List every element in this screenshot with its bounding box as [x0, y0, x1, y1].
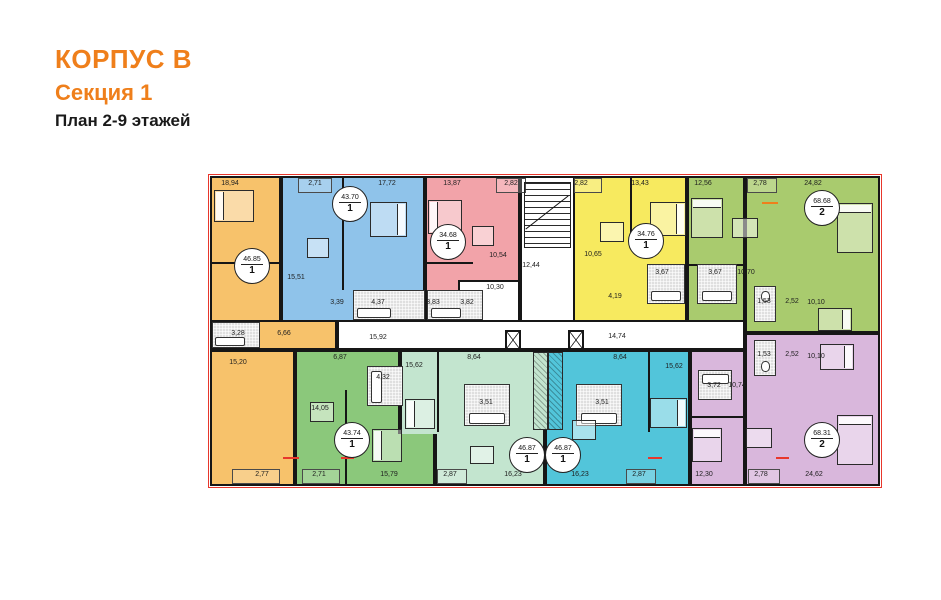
toilet-icon	[761, 361, 770, 372]
room-area-label: 10,10	[807, 299, 825, 307]
room-area-label: 2,82	[574, 180, 588, 188]
room-area-label: 12,56	[694, 180, 712, 188]
dining-table-icon	[746, 428, 772, 448]
room-area-label: 15,20	[229, 359, 247, 367]
room-area-label: 3,82	[460, 299, 474, 307]
door-marker	[648, 457, 662, 459]
room-area-label: 3,72	[707, 382, 721, 390]
apartment-badge: 68.68 2	[804, 190, 840, 226]
bed-icon	[370, 202, 407, 237]
dining-table-icon	[470, 446, 494, 464]
room-area-label: 6,66	[277, 330, 291, 338]
room-area-label: 15,62	[665, 363, 683, 371]
badge-room-count: 1	[643, 240, 649, 252]
room-area-label: 4,37	[371, 299, 385, 307]
room-area-label: 8,64	[613, 354, 627, 362]
section-title: Секция 1	[55, 80, 192, 106]
apartment-badge: 46.87 1	[545, 437, 581, 473]
bed-icon	[372, 429, 402, 462]
drawing-header: КОРПУС В Секция 1 План 2-9 этажей	[55, 44, 192, 131]
room-area-label: 3,28	[231, 330, 245, 338]
room-area-label: 1,53	[757, 298, 771, 306]
room-area-label: 4,19	[608, 293, 622, 301]
apartment-badge: 43.74 1	[334, 422, 370, 458]
room-area-label: 2,52	[785, 351, 799, 359]
badge-room-count: 1	[349, 439, 355, 451]
badge-area: 46.87	[516, 444, 538, 454]
door-marker	[762, 202, 778, 204]
badge-area: 43.74	[341, 429, 363, 439]
entry-hall-area-label: 10,30	[486, 284, 504, 292]
floor-plan: 18,94 3,28 6,66 15,20 2,77 2,71 17,72 15…	[210, 176, 880, 486]
room-area-label: 6,87	[333, 354, 347, 362]
room-area-label: 10,65	[584, 251, 602, 259]
bed-icon	[837, 203, 873, 253]
bed-icon	[405, 399, 435, 429]
badge-area: 46.85	[241, 255, 263, 265]
badge-area: 46.87	[552, 444, 574, 454]
room-area-label: 2,71	[308, 180, 322, 188]
room-area-label: 3,51	[479, 399, 493, 407]
badge-room-count: 2	[819, 207, 825, 219]
apartment-badge: 46.87 1	[509, 437, 545, 473]
apartment-badge: 46.85 1	[234, 248, 270, 284]
page: КОРПУС В Секция 1 План 2-9 этажей	[0, 0, 941, 600]
room-area-label: 1,53	[757, 351, 771, 359]
stairs-icon	[524, 182, 571, 248]
room-area-label: 15,62	[405, 362, 423, 370]
room-area-label: 24,82	[804, 180, 822, 188]
bathtub-icon	[431, 308, 461, 318]
room-area-label: 13,87	[443, 180, 461, 188]
badge-area: 34.76	[635, 230, 657, 240]
room-area-label: 13,43	[631, 180, 649, 188]
bathtub-icon	[651, 291, 681, 301]
bed-icon	[837, 415, 873, 465]
dining-table-icon	[600, 222, 624, 242]
apartment-badge: 34.68 1	[430, 224, 466, 260]
interior-wall	[437, 352, 439, 432]
room-area-label: 2,52	[785, 298, 799, 306]
room-area-label: 14,05	[311, 405, 329, 413]
bathroom	[353, 290, 425, 320]
badge-room-count: 1	[524, 454, 530, 466]
room-area-label: 18,94	[221, 180, 239, 188]
apartment-badge: 43.70 1	[332, 186, 368, 222]
badge-area: 68.68	[811, 197, 833, 207]
plan-caption: План 2-9 этажей	[55, 111, 192, 131]
room-area-label: 17,72	[378, 180, 396, 188]
room-area-label: 10,70	[737, 269, 755, 277]
bed-icon	[692, 428, 722, 462]
room-area-label: 15,79	[380, 471, 398, 479]
room-area-label: 10,10	[807, 353, 825, 361]
dining-table-icon	[472, 226, 494, 246]
bed-icon	[650, 398, 687, 428]
door-marker	[283, 457, 299, 459]
bathtub-icon	[215, 337, 245, 346]
apartment-orange-zone	[210, 350, 295, 486]
room-area-label: 15,51	[287, 274, 305, 282]
bathtub-icon	[469, 413, 505, 424]
room-area-label: 2,77	[255, 471, 269, 479]
room-area-label: 4,32	[376, 374, 390, 382]
room-area-label: 2,78	[754, 471, 768, 479]
bed-icon	[691, 198, 723, 238]
room-area-label: 2,78	[753, 180, 767, 188]
room-area-label: 10,74	[728, 382, 746, 390]
bathroom	[367, 366, 403, 406]
stairwell-area-label: 12,44	[522, 262, 540, 270]
room-area-label: 8,64	[467, 354, 481, 362]
bathtub-icon	[702, 291, 732, 301]
room-area-label: 3,39	[330, 299, 344, 307]
building-title: КОРПУС В	[55, 44, 192, 74]
badge-area: 68.31	[811, 429, 833, 439]
dining-table-icon	[307, 238, 329, 258]
badge-area: 43.70	[339, 193, 361, 203]
wardrobe-icon	[548, 352, 563, 430]
dining-table-icon	[572, 420, 596, 440]
apartment-badge: 68.31 2	[804, 422, 840, 458]
wardrobe-icon	[533, 352, 548, 430]
badge-room-count: 2	[819, 439, 825, 451]
bed-icon	[214, 190, 254, 222]
room-area-label: 2,71	[312, 471, 326, 479]
room-area-label: 2,87	[632, 471, 646, 479]
corridor-area-label: 15,92	[369, 334, 387, 342]
badge-room-count: 1	[249, 265, 255, 277]
room-area-label: 24,62	[805, 471, 823, 479]
room-area-label: 16,23	[571, 471, 589, 479]
corridor-zone	[337, 320, 745, 350]
room-area-label: 2,87	[443, 471, 457, 479]
apartment-badge: 34.76 1	[628, 223, 664, 259]
room-area-label: 3,51	[595, 399, 609, 407]
room-area-label: 16,23	[504, 471, 522, 479]
badge-room-count: 1	[560, 454, 566, 466]
elevator-icon	[505, 330, 521, 350]
room-area-label: 2,82	[504, 180, 518, 188]
room-area-label: 3,67	[655, 269, 669, 277]
room-area-label: 10,54	[489, 252, 507, 260]
room-area-label: 3,83	[426, 299, 440, 307]
bed-icon	[818, 308, 852, 331]
door-marker	[776, 457, 789, 459]
badge-area: 34.68	[437, 231, 459, 241]
elevator-icon	[568, 330, 584, 350]
badge-room-count: 1	[347, 203, 353, 215]
room-area-label: 3,67	[708, 269, 722, 277]
interior-wall	[427, 262, 473, 264]
room-area-label: 12,30	[695, 471, 713, 479]
dining-table-icon	[732, 218, 758, 238]
interior-wall	[690, 416, 745, 418]
corridor-area-label: 14,74	[608, 333, 626, 341]
bathtub-icon	[357, 308, 391, 318]
badge-room-count: 1	[445, 241, 451, 253]
